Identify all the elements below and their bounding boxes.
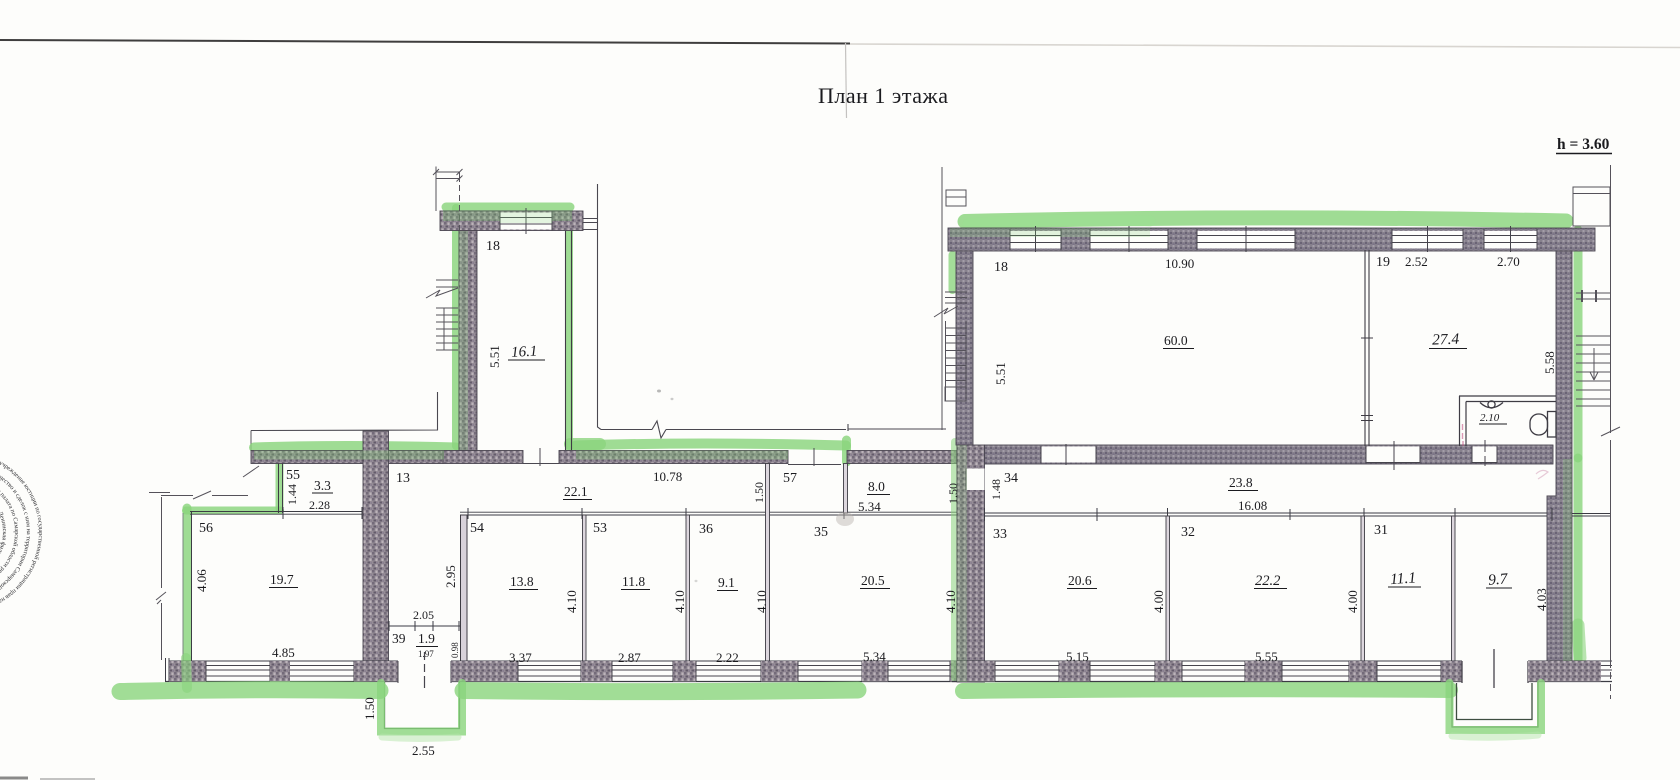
svg-text:h = 3.60: h = 3.60 — [1557, 136, 1610, 153]
svg-text:8.0: 8.0 — [868, 479, 885, 494]
svg-text:54: 54 — [470, 521, 484, 536]
svg-text:2.05: 2.05 — [413, 608, 434, 622]
svg-text:35: 35 — [814, 525, 828, 540]
svg-text:31: 31 — [1374, 523, 1388, 538]
svg-text:16.1: 16.1 — [511, 344, 538, 361]
svg-text:4.10: 4.10 — [943, 590, 958, 613]
svg-text:4.06: 4.06 — [194, 569, 209, 592]
svg-text:18: 18 — [994, 260, 1008, 275]
svg-text:20.5: 20.5 — [861, 573, 885, 588]
svg-text:0.98: 0.98 — [450, 642, 460, 658]
svg-text:2.55: 2.55 — [412, 743, 435, 758]
svg-text:1.97: 1.97 — [418, 649, 434, 659]
svg-text:План 1 этажа: План 1 этажа — [818, 83, 948, 108]
svg-text:10.90: 10.90 — [1165, 256, 1194, 271]
svg-text:22.2: 22.2 — [1255, 573, 1280, 589]
svg-text:16.08: 16.08 — [1238, 498, 1267, 513]
svg-text:4.00: 4.00 — [1151, 590, 1166, 613]
svg-text:19.7: 19.7 — [270, 572, 294, 587]
svg-text:32: 32 — [1181, 525, 1195, 540]
svg-text:5.55: 5.55 — [1255, 649, 1278, 664]
svg-text:4.00: 4.00 — [1345, 590, 1360, 613]
svg-text:2.95: 2.95 — [443, 565, 458, 588]
svg-text:56: 56 — [199, 521, 213, 536]
svg-text:20.6: 20.6 — [1068, 573, 1092, 588]
svg-text:4.10: 4.10 — [564, 590, 579, 613]
svg-text:2.52: 2.52 — [1405, 254, 1428, 269]
svg-text:27.4: 27.4 — [1432, 331, 1460, 349]
svg-text:53: 53 — [593, 521, 607, 536]
svg-text:1.50: 1.50 — [362, 697, 377, 720]
svg-text:57: 57 — [783, 471, 797, 486]
svg-text:34: 34 — [1004, 471, 1018, 486]
svg-text:4.85: 4.85 — [272, 645, 295, 660]
svg-text:2.70: 2.70 — [1497, 254, 1520, 269]
svg-text:13: 13 — [396, 471, 410, 486]
svg-text:60.0: 60.0 — [1164, 333, 1188, 348]
svg-text:9.1: 9.1 — [718, 575, 735, 590]
svg-text:23.8: 23.8 — [1229, 475, 1253, 490]
svg-text:3.37: 3.37 — [509, 650, 532, 665]
svg-text:19: 19 — [1376, 255, 1390, 270]
svg-text:5.15: 5.15 — [1066, 649, 1089, 664]
svg-text:1.50: 1.50 — [752, 482, 766, 503]
svg-text:11.8: 11.8 — [622, 574, 645, 589]
svg-text:1.44: 1.44 — [285, 484, 299, 505]
svg-text:2.87: 2.87 — [618, 650, 641, 665]
svg-text:18: 18 — [486, 239, 500, 254]
svg-text:1.48: 1.48 — [989, 479, 1003, 500]
svg-text:2.28: 2.28 — [309, 498, 330, 512]
svg-text:10.78: 10.78 — [653, 469, 682, 484]
svg-text:3.3: 3.3 — [314, 478, 331, 493]
svg-text:55: 55 — [286, 468, 300, 483]
svg-text:22.1: 22.1 — [564, 484, 588, 499]
svg-text:39: 39 — [392, 631, 406, 646]
svg-text:5.34: 5.34 — [863, 649, 886, 664]
svg-text:5.58: 5.58 — [1542, 351, 1557, 374]
svg-text:36: 36 — [699, 522, 713, 537]
svg-text:2.22: 2.22 — [716, 650, 739, 665]
svg-text:9.7: 9.7 — [1488, 570, 1510, 588]
svg-text:4.10: 4.10 — [672, 590, 687, 613]
svg-text:5.51: 5.51 — [487, 345, 502, 368]
svg-text:11.1: 11.1 — [1390, 569, 1417, 588]
svg-text:13.8: 13.8 — [510, 574, 534, 589]
svg-text:2.10: 2.10 — [1480, 412, 1500, 424]
svg-text:5.34: 5.34 — [858, 499, 881, 514]
svg-text:33: 33 — [993, 527, 1007, 542]
svg-text:1.9: 1.9 — [418, 631, 435, 646]
svg-text:4.10: 4.10 — [754, 590, 769, 613]
svg-text:4.03: 4.03 — [1534, 588, 1549, 611]
svg-text:5.51: 5.51 — [993, 362, 1008, 385]
